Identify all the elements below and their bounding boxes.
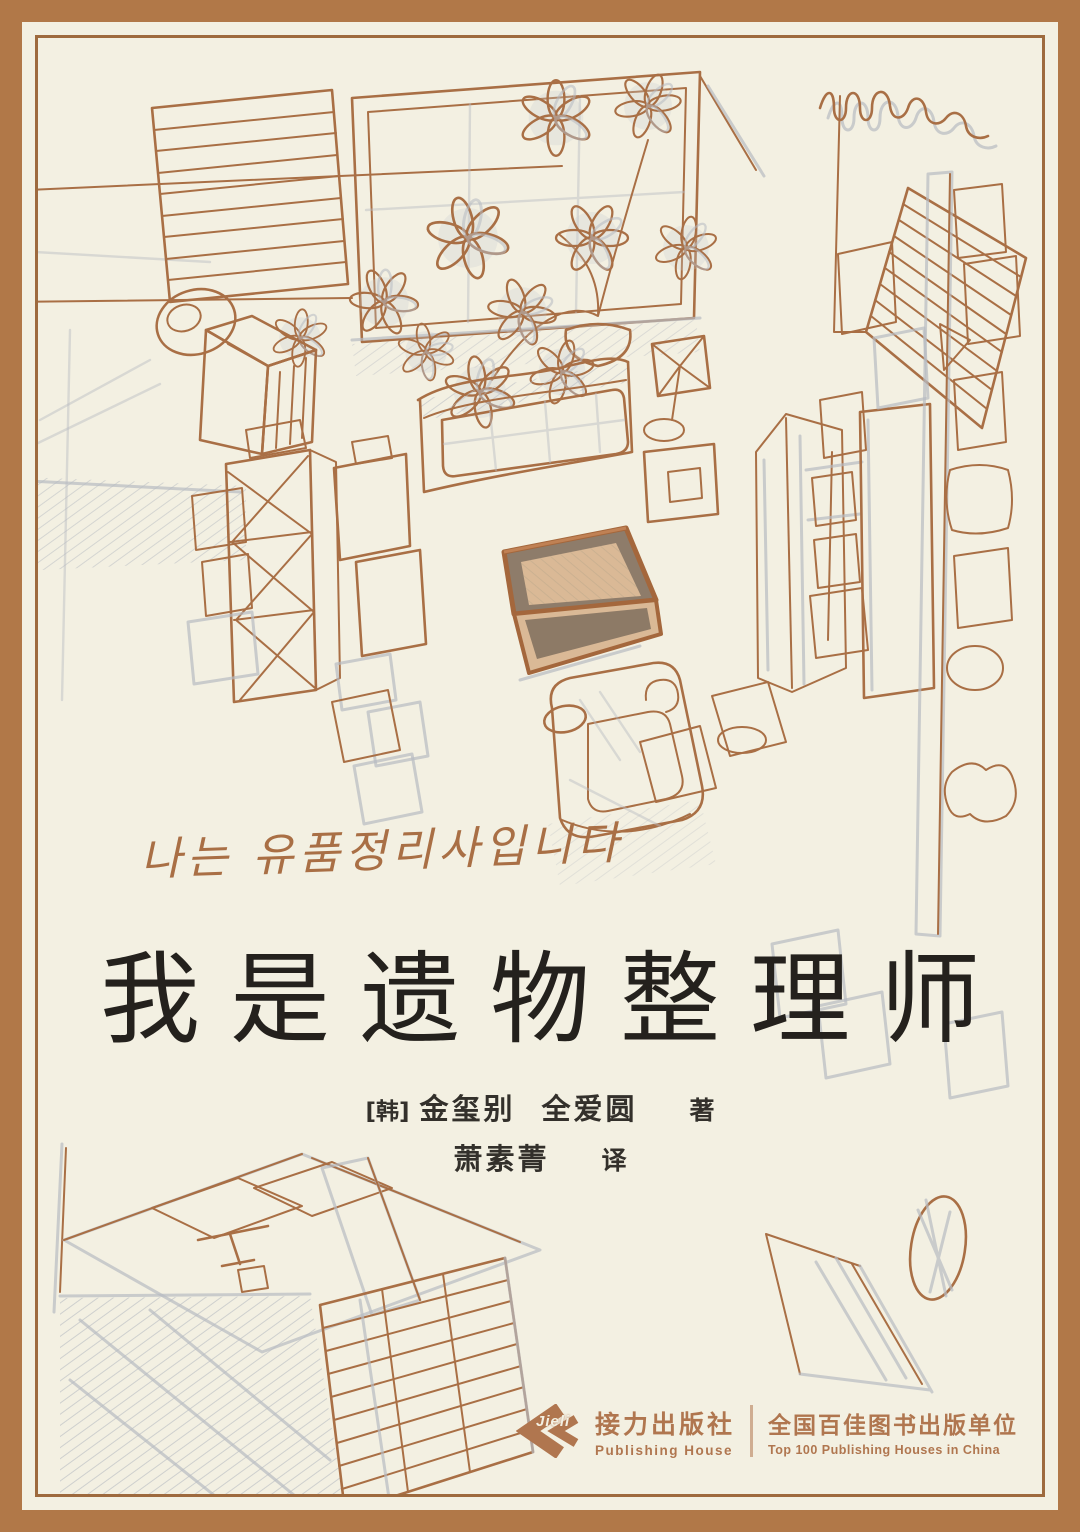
publisher-divider: [750, 1405, 753, 1457]
bed-sketch: [418, 359, 632, 492]
desk-scene-sketch: [54, 1144, 540, 1522]
jieli-logo-text: Jieli: [536, 1413, 570, 1430]
keepsake-box-sketch: [504, 528, 661, 680]
publisher-name-en: Publishing House: [595, 1443, 735, 1458]
translator-role: 译: [602, 1141, 627, 1177]
publisher-honor: 全国百佳图书出版单位 Top 100 Publishing Houses in …: [768, 1406, 1018, 1457]
jieli-logo-icon: Jieli: [516, 1404, 580, 1458]
rug-mirror-sketch: [766, 1192, 973, 1392]
nightstand-sketch: [334, 436, 428, 766]
author-name-1: 金玺别: [419, 1086, 515, 1128]
side-table-sketch: [644, 336, 718, 522]
publisher-honor-en: Top 100 Publishing Houses in China: [768, 1443, 1018, 1457]
room-sketch-illustration: [0, 0, 1080, 1532]
publisher-block: Jieli 接力出版社 Publishing House 全国百佳图书出版单位 …: [516, 1404, 1018, 1458]
publisher-name-cn: 接力出版社: [595, 1405, 735, 1441]
translator-name: 萧素菁: [453, 1136, 549, 1178]
author-name-2: 全爱圆: [542, 1086, 638, 1128]
translator-line: 萧素菁 译: [0, 1136, 1080, 1178]
publisher-name: 接力出版社 Publishing House: [595, 1405, 735, 1458]
author-origin: [韩]: [365, 1092, 409, 1126]
author-line: [韩] 金玺别 全爱圆 著: [0, 1086, 1080, 1128]
book-cover: 나는 유품정리사입니다 我是遗物整理师 [韩] 金玺别 全爱圆 著 萧素菁 译 …: [0, 0, 1080, 1532]
author-role: 著: [690, 1091, 715, 1127]
book-title: 我是遗物整理师: [0, 918, 1080, 1063]
publisher-honor-cn: 全国百佳图书出版单位: [768, 1406, 1018, 1440]
